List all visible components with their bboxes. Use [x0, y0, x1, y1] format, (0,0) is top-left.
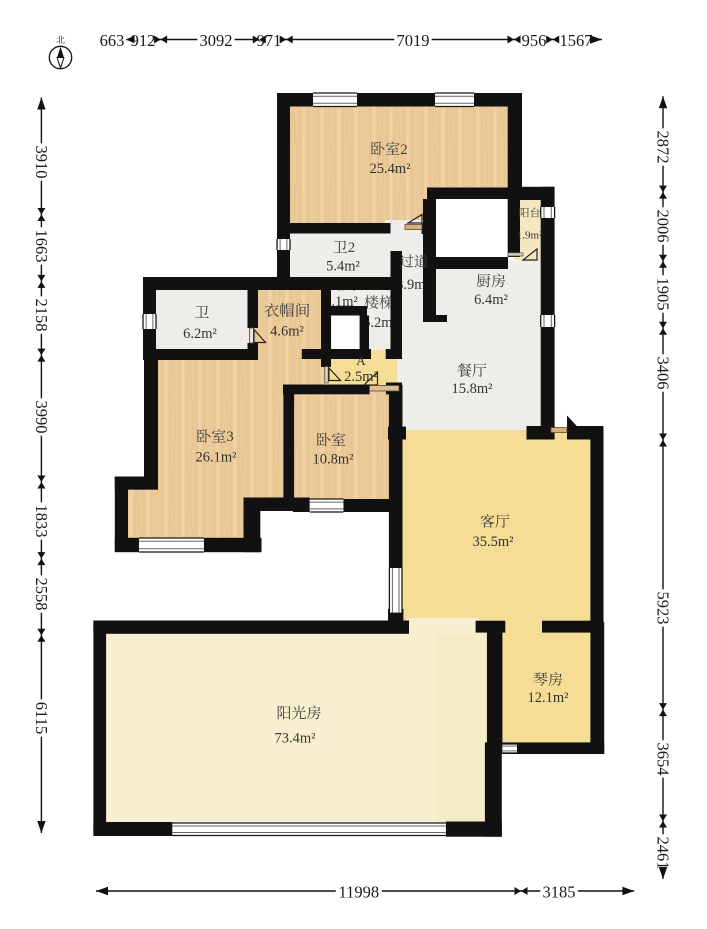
svg-text:5923: 5923	[654, 592, 673, 625]
svg-text:2: 2	[400, 142, 408, 158]
svg-text:2558: 2558	[32, 578, 51, 611]
svg-text:25.4m²: 25.4m²	[369, 161, 411, 177]
svg-text:35.5m²: 35.5m²	[472, 534, 514, 550]
svg-text:3406: 3406	[654, 357, 673, 390]
svg-text:15.8m²: 15.8m²	[451, 381, 493, 397]
svg-text:A: A	[356, 353, 366, 368]
svg-text:3092: 3092	[200, 31, 233, 50]
svg-text:1663: 1663	[32, 230, 51, 263]
svg-text:2: 2	[348, 240, 356, 256]
svg-text:6.2m²: 6.2m²	[183, 326, 217, 342]
svg-text:3185: 3185	[543, 882, 576, 901]
svg-text:7019: 7019	[397, 31, 430, 50]
svg-text:5.4m²: 5.4m²	[326, 259, 360, 275]
svg-text:2461: 2461	[654, 837, 673, 870]
svg-text:26.1m²: 26.1m²	[195, 450, 237, 466]
svg-text:3910: 3910	[32, 146, 51, 179]
svg-text:3: 3	[226, 429, 234, 445]
svg-text:3990: 3990	[32, 401, 51, 434]
svg-text:1567: 1567	[560, 31, 593, 50]
svg-text:1.9m²: 1.9m²	[517, 230, 543, 242]
svg-text:12.1m²: 12.1m²	[527, 690, 569, 706]
svg-text:2006: 2006	[654, 210, 673, 243]
svg-text:971: 971	[257, 31, 282, 50]
svg-text:6.4m²: 6.4m²	[474, 292, 508, 308]
svg-text:4.6m²: 4.6m²	[270, 324, 304, 340]
svg-text:73.4m²: 73.4m²	[274, 731, 316, 747]
svg-text:3654: 3654	[654, 743, 673, 776]
svg-text:10.8m²: 10.8m²	[312, 452, 354, 468]
svg-text:2158: 2158	[32, 299, 51, 332]
svg-text:2872: 2872	[654, 131, 673, 164]
svg-text:6115: 6115	[32, 702, 51, 734]
svg-text:1833: 1833	[32, 505, 51, 538]
svg-text:663: 663	[100, 31, 125, 50]
svg-text:1905: 1905	[654, 278, 673, 311]
svg-text:2.5m²: 2.5m²	[344, 369, 378, 385]
svg-text:11998: 11998	[338, 882, 379, 901]
svg-text:956: 956	[522, 31, 547, 50]
